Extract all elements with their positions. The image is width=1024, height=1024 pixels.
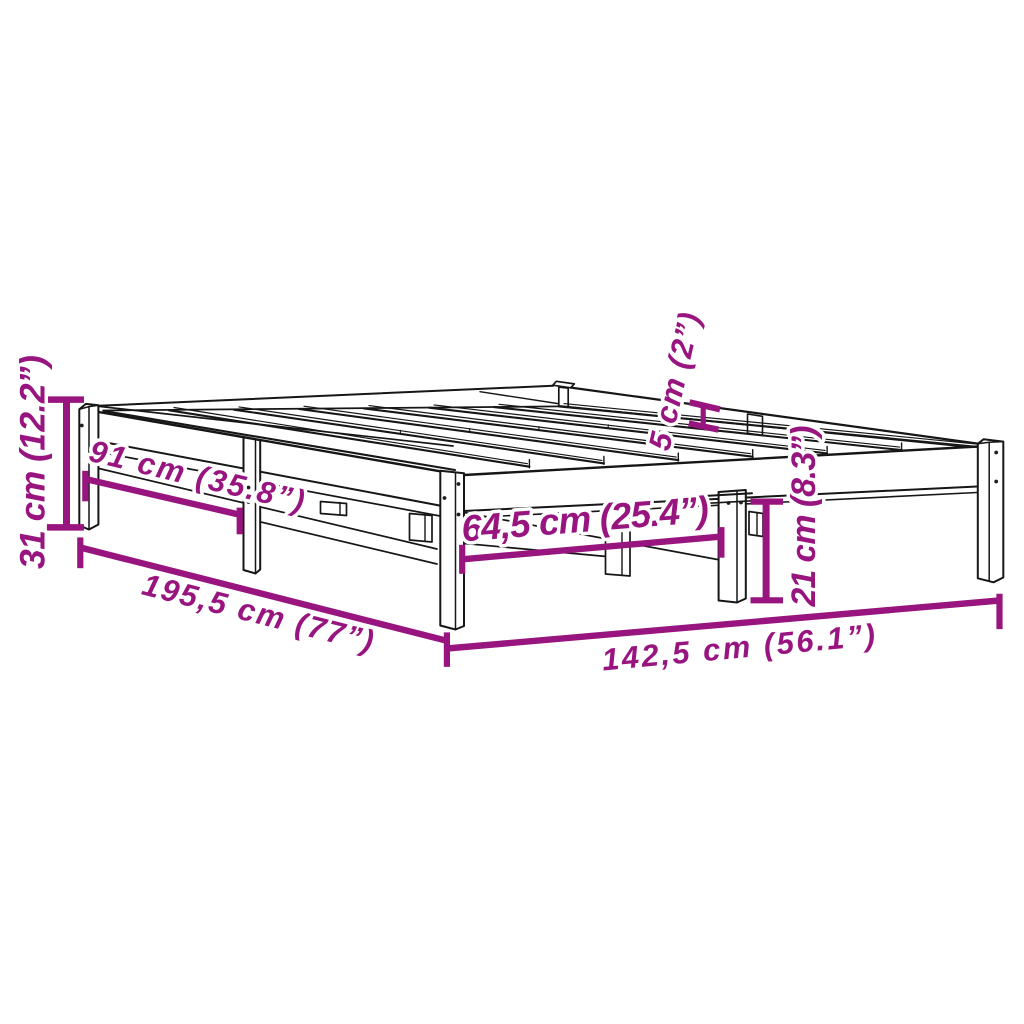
svg-text:31 cm (12.2”): 31 cm (12.2”) [13, 355, 53, 569]
svg-text:21 cm (8.3”): 21 cm (8.3”) [785, 426, 823, 608]
